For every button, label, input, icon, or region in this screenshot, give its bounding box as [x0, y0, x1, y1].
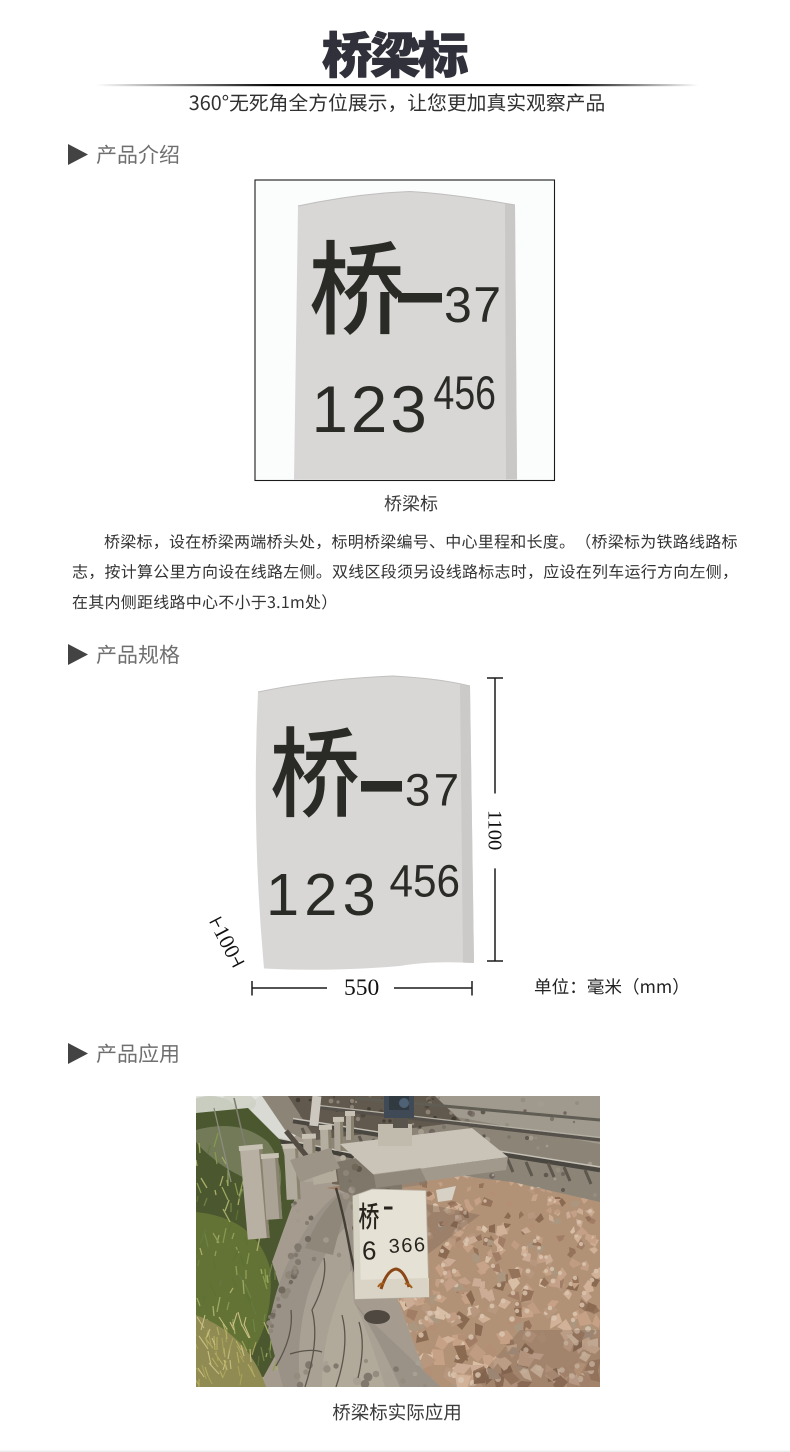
svg-text:37: 37	[444, 277, 503, 333]
svg-text:1100: 1100	[484, 810, 506, 850]
svg-text:123: 123	[266, 861, 381, 928]
svg-text:123: 123	[312, 373, 430, 446]
svg-text:37: 37	[405, 765, 463, 816]
svg-text:550: 550	[344, 975, 379, 1001]
svg-text:456: 456	[434, 366, 497, 419]
svg-text:456: 456	[390, 856, 461, 907]
